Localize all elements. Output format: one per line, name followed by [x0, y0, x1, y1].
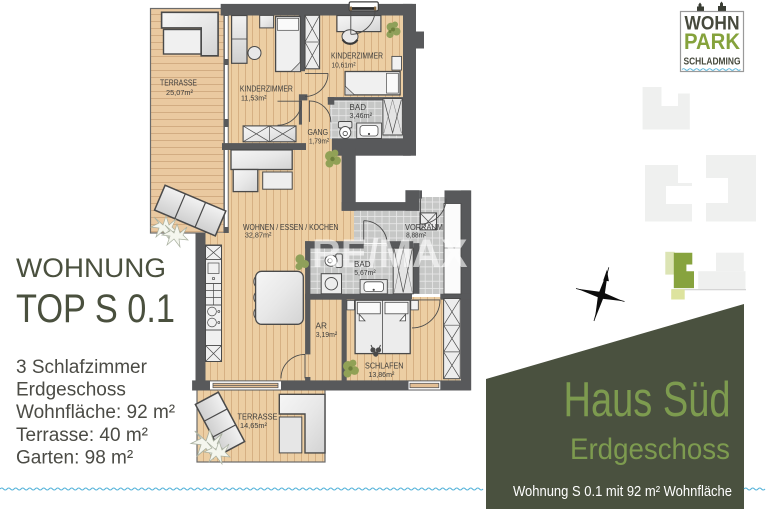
svg-text:SCHLAFEN: SCHLAFEN [365, 360, 404, 370]
svg-text:5,67m²: 5,67m² [354, 268, 376, 277]
svg-text:3 Schlafzimmer: 3 Schlafzimmer [16, 357, 148, 378]
svg-text:SCHLADMING: SCHLADMING [684, 56, 741, 68]
svg-text:1,79m²: 1,79m² [309, 137, 329, 146]
svg-text:AR: AR [316, 320, 328, 330]
svg-text:3,46m²: 3,46m² [350, 111, 373, 120]
svg-text:RE/MAX: RE/MAX [312, 232, 468, 276]
svg-text:Haus Süd: Haus Süd [564, 373, 731, 427]
svg-text:TERRASSE: TERRASSE [238, 411, 278, 421]
svg-text:PARK: PARK [684, 29, 740, 54]
svg-text:Garten: 98 m²: Garten: 98 m² [16, 447, 133, 468]
svg-text:TERRASSE: TERRASSE [160, 78, 197, 88]
svg-text:Terrasse: 40 m²: Terrasse: 40 m² [16, 425, 148, 446]
svg-text:Wohnfläche: 92 m²: Wohnfläche: 92 m² [16, 402, 175, 423]
svg-text:Wohnung S 0.1 mit 92 m² Wohnfl: Wohnung S 0.1 mit 92 m² Wohnfläche [513, 484, 732, 500]
svg-text:11,53m²: 11,53m² [241, 93, 267, 102]
svg-text:TOP S 0.1: TOP S 0.1 [16, 287, 175, 331]
svg-text:14,65m²: 14,65m² [240, 421, 267, 430]
svg-text:13,86m²: 13,86m² [368, 370, 394, 379]
svg-text:KINDERZIMMER: KINDERZIMMER [240, 84, 293, 94]
svg-text:Erdgeschoss: Erdgeschoss [16, 380, 126, 401]
svg-text:32,87m²: 32,87m² [245, 231, 272, 240]
svg-text:25,07m²: 25,07m² [166, 88, 193, 97]
svg-text:WOHNUNG: WOHNUNG [16, 253, 166, 283]
svg-text:8,88m²: 8,88m² [406, 230, 426, 239]
svg-text:3,19m²: 3,19m² [316, 330, 338, 339]
svg-text:10,61m²: 10,61m² [332, 61, 356, 70]
svg-text:Erdgeschoss: Erdgeschoss [570, 433, 730, 466]
svg-text:KINDERZIMMER: KINDERZIMMER [331, 50, 383, 60]
svg-text:GANG: GANG [308, 127, 329, 137]
